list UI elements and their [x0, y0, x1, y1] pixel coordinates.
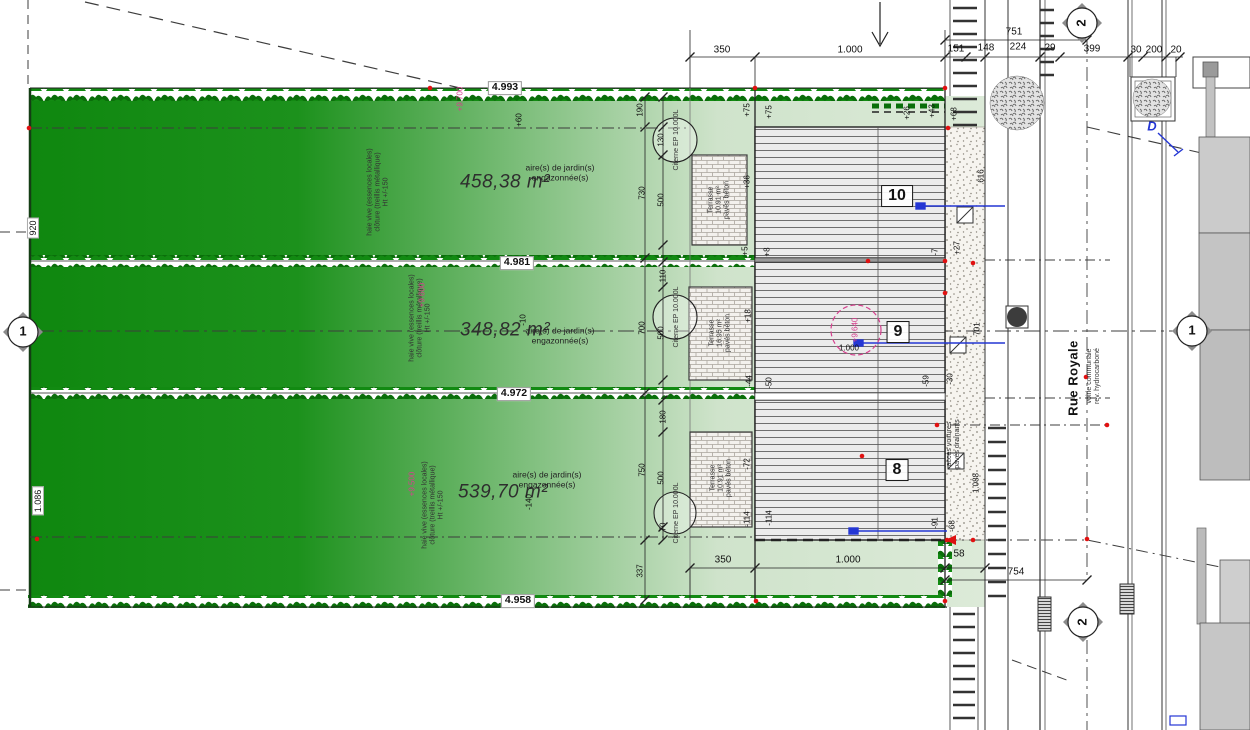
tree-2 [1133, 79, 1171, 117]
site-plan-canvas: 458,38 m²348,82 m²539,70 m²aire(s) de ja… [0, 0, 1250, 730]
terraces [689, 155, 752, 527]
sidewalk-tree [1007, 307, 1027, 327]
utility-box-8 [948, 453, 964, 469]
driveway-strip [945, 127, 985, 540]
cistern-8 [654, 492, 696, 534]
house-9-roof [755, 262, 945, 393]
site-plan-drawing [0, 0, 1250, 730]
neighbor-buildings [1193, 57, 1250, 730]
terrace-10 [692, 155, 747, 245]
utility-box-9 [950, 337, 966, 353]
utility-box-10 [957, 207, 973, 223]
street-pole-2 [1120, 584, 1134, 614]
terrace-8 [690, 432, 752, 527]
house-8-roof [755, 400, 945, 540]
street-pole-1 [1038, 597, 1051, 631]
house-10-roof [755, 127, 945, 258]
cistern-10 [653, 118, 697, 162]
terrace-9 [689, 287, 752, 380]
cistern-9 [653, 295, 697, 339]
houses [755, 127, 945, 540]
tree-1 [990, 76, 1044, 130]
